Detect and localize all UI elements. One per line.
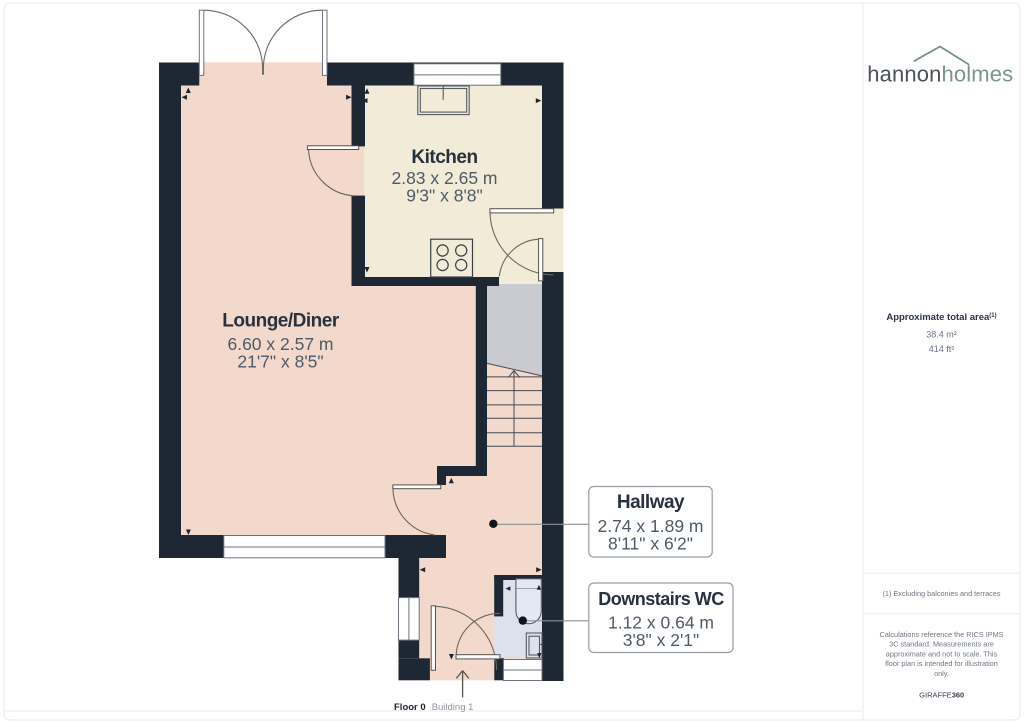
svg-text:Calculations reference the RIC: Calculations reference the RICS IPMS (879, 630, 1003, 639)
svg-text:8'11" x 6'2": 8'11" x 6'2" (608, 534, 693, 554)
svg-text:9'3" x 8'8": 9'3" x 8'8" (406, 186, 483, 206)
svg-text:only.: only. (934, 669, 949, 678)
svg-text:Lounge/Diner: Lounge/Diner (222, 311, 340, 332)
svg-text:Approximate total area(1): Approximate total area(1) (886, 312, 996, 323)
svg-text:GIRAFFE360: GIRAFFE360 (919, 691, 964, 700)
svg-text:Downstairs WC: Downstairs WC (598, 589, 724, 609)
svg-text:38.4 m²: 38.4 m² (926, 330, 957, 340)
svg-text:Kitchen: Kitchen (411, 147, 477, 168)
svg-text:Building 1: Building 1 (432, 702, 474, 713)
svg-text:(1) Excluding balconies and te: (1) Excluding balconies and terraces (882, 589, 1000, 598)
svg-text:Hallway: Hallway (617, 492, 685, 513)
svg-text:approximate and not to scale.: approximate and not to scale. This (886, 649, 998, 658)
svg-text:Floor 0: Floor 0 (394, 702, 426, 713)
svg-text:21'7" x 8'5": 21'7" x 8'5" (237, 352, 323, 372)
svg-text:3C standard. Measurements are: 3C standard. Measurements are (889, 640, 994, 649)
svg-text:3'8" x 2'1": 3'8" x 2'1" (623, 630, 700, 650)
svg-text:hannonholmes: hannonholmes (867, 61, 1013, 86)
svg-text:414 ft²: 414 ft² (929, 344, 955, 354)
svg-text:floor plan is intended for ill: floor plan is intended for illustration (885, 659, 998, 668)
